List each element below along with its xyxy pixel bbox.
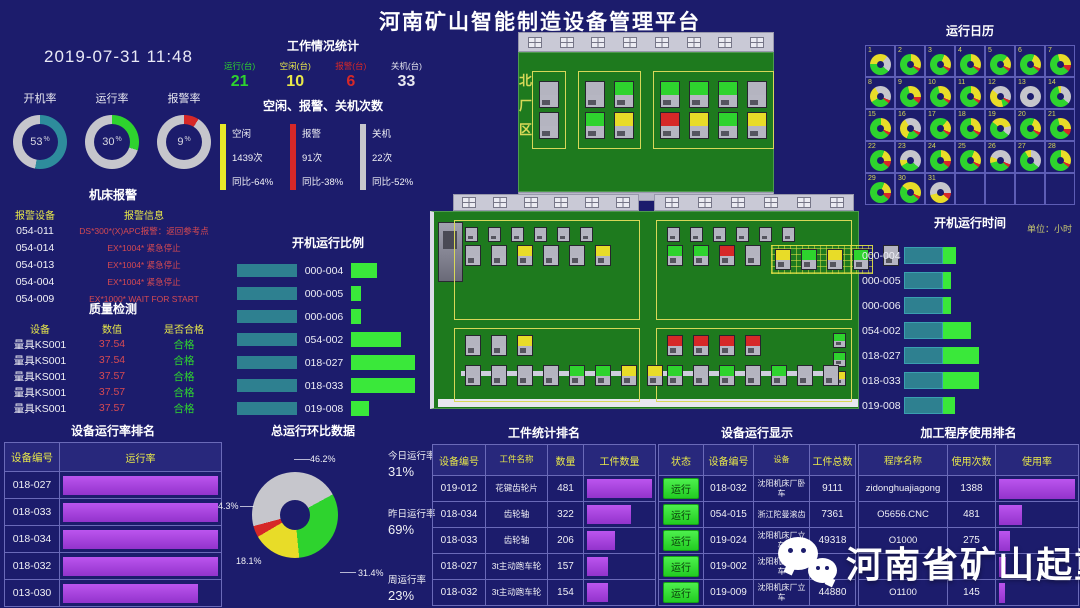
run-bar — [351, 263, 377, 278]
runrate-bar-cell — [59, 499, 221, 525]
column-header: 程序名称 — [859, 445, 947, 475]
machine-icon — [511, 227, 524, 242]
status-cell: 运行 — [659, 554, 703, 579]
run-bar — [943, 347, 979, 364]
machine-icon — [759, 227, 772, 242]
workpiece-qty: 154 — [547, 580, 583, 605]
window-icon — [623, 37, 637, 48]
table-row: 018-032 — [5, 552, 221, 579]
machine-icon — [747, 81, 767, 108]
work-stat-label: 报警(台) — [335, 60, 366, 72]
column-header: 设备 — [753, 445, 809, 475]
north-factory-floor: 北厂区 — [518, 52, 774, 192]
run-bar — [943, 247, 956, 264]
quality-device: 量具KS001 — [4, 385, 76, 400]
boot-time-panel: 开机运行时间 单位：小时 000-004000-005000-006054-00… — [862, 214, 1078, 418]
machine-row — [539, 112, 559, 139]
quality-check-panel: 质量检测 设备 数值 是否合格 量具KS00137.54合格量具KS00137.… — [4, 300, 222, 416]
work-stat: 关机(台)33 — [391, 60, 422, 91]
factory-zone — [656, 328, 852, 402]
column-header: 设备编号 — [433, 445, 485, 475]
table-row: 013-030 — [5, 579, 221, 606]
table-row: 054-011DS*300*(X)APC报警：返回参考点 — [4, 222, 222, 239]
qty-bar-cell — [583, 528, 655, 553]
qty-bar-cell — [583, 476, 655, 501]
machine-icon — [557, 227, 570, 242]
table-row: 量具KS00137.57合格 — [4, 400, 222, 416]
runrate-rank-title: 设备运行率排名 — [4, 422, 222, 439]
work-stat: 运行(台)21 — [224, 60, 255, 91]
boot-run-ratio-title: 开机运行比例 — [228, 234, 428, 251]
calendar-day-number: 13 — [1018, 79, 1026, 86]
machine-icon — [465, 245, 481, 266]
calendar-day-cell: 21 — [1045, 109, 1075, 141]
machine-icon — [595, 245, 611, 266]
table-header-row: 设备编号 工件名称 数量 工件数量 — [433, 445, 655, 475]
gauge-donut: 53% — [13, 115, 67, 169]
qty-bar — [587, 583, 608, 602]
slice-label: 46.2% — [310, 454, 336, 464]
calendar-day-number: 14 — [1048, 79, 1056, 86]
boot-time-row: 018-027 — [862, 343, 1078, 368]
factory-zone — [653, 71, 774, 149]
slice-label: 4.3% — [218, 501, 239, 511]
window-icon — [528, 37, 542, 48]
machine-group — [465, 245, 611, 266]
count-stat-bar — [290, 124, 296, 190]
calendar-day-number: 30 — [898, 175, 906, 182]
count-stat-group: 关机22次同比-52% — [360, 124, 426, 190]
watermark: 河南省矿山起重机 — [778, 534, 1080, 590]
table-row: 量具KS00137.54合格 — [4, 352, 222, 368]
machine-icon — [465, 227, 478, 242]
calendar-day-cell: 31 — [925, 173, 955, 205]
count-stat-label: 空闲 — [232, 126, 273, 140]
device-id: 018-033 — [297, 380, 351, 392]
machine-group — [465, 227, 593, 242]
work-stat-label: 关机(台) — [391, 60, 422, 72]
calendar-day-cell: 1 — [865, 45, 895, 77]
quality-device: 量具KS001 — [4, 401, 76, 416]
alarm-message: DS*300*(X)APC报警：返回参考点 — [66, 225, 222, 237]
machine-icon — [488, 227, 501, 242]
gauge-unit: % — [116, 136, 122, 143]
runrate-rank-panel: 设备运行率排名 设备编号 运行率 018-027018-033018-03401… — [4, 422, 222, 607]
machine-icon — [775, 249, 791, 270]
gauge-label: 报警率 — [150, 90, 218, 106]
calendar-mini-donut — [960, 54, 981, 75]
total-run-donut-chart — [252, 472, 338, 558]
calendar-day-cell — [985, 173, 1015, 205]
run-bar — [943, 397, 955, 414]
window-icon — [524, 197, 538, 208]
machine-alarm-rows: 054-011DS*300*(X)APC报警：返回参考点054-014EX*10… — [4, 222, 222, 307]
calendar-day-cell: 8 — [865, 77, 895, 109]
alarm-device: 054-011 — [4, 225, 66, 237]
column-header: 工件数量 — [583, 445, 655, 475]
device-id: 000-004 — [297, 265, 351, 277]
machine-icon — [614, 81, 634, 108]
ratio-row: 000-006 — [228, 305, 428, 328]
column-header: 是否合格 — [148, 321, 220, 336]
count-stat-group: 空闲1439次同比-64% — [220, 124, 286, 190]
north-factory-map: 北厂区 — [518, 32, 774, 202]
calendar-day-cell — [1015, 173, 1045, 205]
boot-time-row: 019-008 — [862, 393, 1078, 418]
calendar-day-number: 8 — [868, 79, 872, 86]
device-id: 000-004 — [862, 250, 904, 262]
calendar-day-number: 11 — [958, 79, 965, 86]
boot-bar — [237, 310, 297, 323]
device-id: 019-008 — [862, 400, 904, 412]
calendar-day-cell: 9 — [895, 77, 925, 109]
quality-check-title: 质量检测 — [4, 300, 222, 317]
workpiece-name: 齿轮轴 — [485, 502, 547, 527]
workpiece-qty: 481 — [547, 476, 583, 501]
run-bar — [943, 372, 979, 389]
factory-windows — [518, 32, 774, 52]
run-status-button[interactable]: 运行 — [663, 582, 699, 603]
machine-icon — [771, 365, 787, 386]
unit-label: 单位：小时 — [1027, 222, 1072, 235]
alarm-device: 054-014 — [4, 242, 66, 254]
machine-group — [667, 365, 839, 386]
runrate-bar-cell — [59, 472, 221, 498]
gauge-value: 9% — [157, 115, 211, 169]
window-icon — [698, 197, 712, 208]
boot-bar — [237, 402, 297, 415]
boot-bar — [904, 397, 943, 414]
device-name: 浙江陀曼滚齿 — [753, 502, 809, 527]
run-calendar-title: 运行日历 — [862, 22, 1078, 39]
column-header: 设备 — [4, 321, 76, 336]
ratio-row: 054-002 — [228, 328, 428, 351]
table-row: 018-034齿轮轴322 — [433, 501, 655, 527]
calendar-mini-donut — [870, 86, 891, 107]
leader-line — [294, 459, 310, 460]
status-cell: 运行 — [659, 502, 703, 527]
machine-icon — [569, 245, 585, 266]
work-stat: 空闲(台)10 — [280, 60, 311, 91]
machine-row — [660, 81, 767, 108]
gauge-label: 开机率 — [6, 90, 74, 106]
machine-icon — [667, 365, 683, 386]
usage-count: 1388 — [947, 476, 995, 501]
factory-zone — [454, 328, 640, 402]
usage-bar-cell — [995, 502, 1078, 527]
usage-bar-cell — [995, 476, 1078, 501]
table-row: 运行054-015浙江陀曼滚齿7361 — [659, 501, 855, 527]
device-id: 054-002 — [862, 325, 904, 337]
calendar-day-number: 5 — [988, 47, 992, 54]
calendar-day-cell: 22 — [865, 141, 895, 173]
calendar-day-cell: 6 — [1015, 45, 1045, 77]
device-id: 000-006 — [297, 311, 351, 323]
calendar-mini-donut — [990, 150, 1011, 171]
device-id: 018-027 — [297, 357, 351, 369]
calendar-mini-donut — [960, 118, 981, 139]
column-header: 工件名称 — [485, 445, 547, 475]
machine-icon — [647, 365, 663, 386]
calendar-mini-donut — [900, 86, 921, 107]
machine-icon — [689, 81, 709, 108]
table-row: O5656.CNC481 — [859, 501, 1078, 527]
south-factory-map — [430, 194, 859, 418]
calendar-mini-donut — [900, 182, 921, 203]
column-header: 报警设备 — [4, 207, 66, 222]
calendar-day-cell: 5 — [985, 45, 1015, 77]
device-id: 018-032 — [433, 580, 485, 605]
boot-time-row: 000-005 — [862, 268, 1078, 293]
column-header: 状态 — [659, 445, 703, 475]
machine-alarm-title: 机床报警 — [4, 186, 222, 203]
calendar-mini-donut — [1050, 86, 1071, 107]
calendar-mini-donut — [930, 118, 951, 139]
table-row: 量具KS00137.54合格 — [4, 336, 222, 352]
gauge-donut: 9% — [157, 115, 211, 169]
window-icon — [731, 197, 745, 208]
count-stat-count: 91次 — [302, 150, 343, 164]
table-row: 量具KS00137.57合格 — [4, 368, 222, 384]
table-row: 054-004EX*1004* 紧急停止 — [4, 273, 222, 290]
table-row: 018-034 — [5, 525, 221, 552]
qty-bar-cell — [583, 554, 655, 579]
machine-icon — [782, 227, 795, 242]
machine-icon — [491, 335, 507, 356]
machine-icon — [718, 81, 738, 108]
calendar-day-number: 29 — [868, 175, 876, 182]
machine-icon — [797, 365, 813, 386]
factory-windows — [453, 194, 639, 211]
machine-icon — [827, 249, 843, 270]
calendar-day-number: 26 — [988, 143, 996, 150]
window-icon — [554, 197, 568, 208]
quality-device: 量具KS001 — [4, 337, 76, 352]
workpiece-name: 3t主动跑车轮 — [485, 580, 547, 605]
run-bar — [351, 355, 415, 370]
quality-rows: 量具KS00137.54合格量具KS00137.54合格量具KS00137.57… — [4, 336, 222, 416]
device-id: 019-009 — [703, 580, 753, 605]
workpiece-rank-title: 工件统计排名 — [432, 424, 656, 441]
quality-value: 37.57 — [76, 370, 148, 382]
work-stats-title: 工作情况统计 — [220, 37, 426, 54]
window-icon — [687, 37, 701, 48]
machine-icon — [543, 245, 559, 266]
machine-icon — [621, 365, 637, 386]
run-status-button[interactable]: 运行 — [663, 556, 699, 577]
table-row: 018-0323t主动跑车轮154 — [433, 579, 655, 605]
total-run-ring-title: 总运行环比数据 — [228, 422, 398, 439]
run-status-button[interactable]: 运行 — [663, 530, 699, 551]
calendar-day-number: 7 — [1048, 47, 1052, 54]
window-icon — [493, 197, 507, 208]
alarm-message: EX*1004* 紧急停止 — [66, 276, 222, 288]
quality-result: 合格 — [148, 353, 220, 368]
run-status-button[interactable]: 运行 — [663, 504, 699, 525]
device-id: 054-002 — [297, 334, 351, 346]
work-stat-value: 33 — [391, 73, 422, 91]
calendar-day-cell: 26 — [985, 141, 1015, 173]
boot-bar — [904, 322, 943, 339]
quality-headers: 设备 数值 是否合格 — [4, 321, 222, 336]
column-header: 使用次数 — [947, 445, 995, 475]
table-header-row: 状态 设备编号 设备 工件总数 — [659, 445, 855, 475]
workpiece-qty: 322 — [547, 502, 583, 527]
count-stat-yoy: 同比-52% — [372, 174, 413, 188]
calendar-day-number: 31 — [928, 175, 936, 182]
device-run-title: 设备运行显示 — [658, 424, 856, 441]
ratio-row: 018-027 — [228, 351, 428, 374]
calendar-day-number: 25 — [958, 143, 966, 150]
qty-bar — [587, 505, 631, 524]
status-cell: 运行 — [659, 580, 703, 605]
rate-gauge: 运行率30% — [78, 90, 146, 169]
machine-icon — [667, 335, 683, 356]
runrate-bar — [63, 557, 218, 576]
table-row: 019-012花键齿轮片481 — [433, 475, 655, 501]
dashboard: 河南矿山智能制造设备管理平台 2019-07-31 11:48 开机率53%运行… — [0, 0, 1080, 608]
machine-icon — [693, 245, 709, 266]
calendar-day-number: 22 — [868, 143, 876, 150]
runrate-bar — [63, 584, 198, 603]
calendar-day-cell: 28 — [1045, 141, 1075, 173]
machine-icon — [823, 365, 839, 386]
column-header: 数量 — [547, 445, 583, 475]
machine-row — [539, 81, 559, 108]
machine-icon — [517, 245, 533, 266]
machine-group — [667, 335, 761, 356]
calendar-mini-donut — [1020, 54, 1041, 75]
machine-icon — [465, 335, 481, 356]
table-row: 018-0273t主动跑车轮157 — [433, 553, 655, 579]
machine-icon — [539, 81, 559, 108]
window-icon — [665, 197, 679, 208]
run-calendar-panel: 运行日历 12345678910111213141516171819202122… — [862, 22, 1078, 205]
device-id: 018-033 — [5, 499, 59, 525]
qty-bar-cell — [583, 580, 655, 605]
workpiece-total: 7361 — [809, 502, 855, 527]
calendar-mini-donut — [960, 86, 981, 107]
calendar-day-cell: 29 — [865, 173, 895, 205]
count-stat-group: 报警91次同比-38% — [290, 124, 356, 190]
window-icon — [750, 37, 764, 48]
workpiece-name: 齿轮轴 — [485, 528, 547, 553]
window-icon — [655, 37, 669, 48]
calendar-mini-donut — [990, 54, 1011, 75]
window-icon — [560, 37, 574, 48]
datetime: 2019-07-31 11:48 — [44, 47, 193, 67]
column-header: 使用率 — [995, 445, 1078, 475]
workpiece-name: 花键齿轮片 — [485, 476, 547, 501]
column-header: 设备编号 — [703, 445, 753, 475]
machine-icon — [517, 335, 533, 356]
run-calendar-grid: 1234567891011121314151617181920212223242… — [865, 45, 1075, 205]
count-stat-count: 1439次 — [232, 150, 273, 164]
calendar-day-cell: 16 — [895, 109, 925, 141]
boot-time-row: 000-006 — [862, 293, 1078, 318]
calendar-mini-donut — [990, 118, 1011, 139]
calendar-day-number: 9 — [898, 79, 902, 86]
leader-line — [340, 572, 356, 573]
calendar-day-number: 3 — [928, 47, 932, 54]
boot-time-row: 018-033 — [862, 368, 1078, 393]
calendar-mini-donut — [960, 150, 981, 171]
runrate-bar — [63, 503, 218, 522]
window-icon — [718, 37, 732, 48]
factory-zone — [532, 71, 566, 149]
table-row: 运行018-032沈阳机床厂卧车9111 — [659, 475, 855, 501]
work-stats-panel: 工作情况统计 运行(台)21空闲(台)10报警(台)6关机(台)33 — [220, 37, 426, 91]
calendar-day-number: 28 — [1048, 143, 1056, 150]
calendar-day-number: 18 — [958, 111, 966, 118]
calendar-day-number: 23 — [898, 143, 906, 150]
calendar-day-number: 24 — [928, 143, 936, 150]
calendar-day-number: 2 — [898, 47, 902, 54]
device-id: 019-008 — [297, 403, 351, 415]
calendar-day-cell — [1045, 173, 1075, 205]
calendar-mini-donut — [900, 118, 921, 139]
ratio-row: 018-033 — [228, 374, 428, 397]
quality-value: 37.54 — [76, 354, 148, 366]
quality-result: 合格 — [148, 369, 220, 384]
leader-line — [240, 506, 254, 507]
table-row: 量具KS00137.57合格 — [4, 384, 222, 400]
machine-row — [660, 112, 767, 139]
machine-icon — [569, 365, 585, 386]
run-bar — [351, 286, 361, 301]
rate-gauge: 报警率9% — [150, 90, 218, 169]
run-bar — [351, 332, 401, 347]
workpiece-total: 9111 — [809, 476, 855, 501]
boot-bar — [237, 333, 297, 346]
device-id: 019-024 — [703, 528, 753, 553]
machine-icon — [534, 227, 547, 242]
north-area-label: 北厂区 — [519, 53, 532, 191]
calendar-day-cell: 12 — [985, 77, 1015, 109]
calendar-day-cell: 2 — [895, 45, 925, 77]
table-row: zidonghuajiagong1388 — [859, 475, 1078, 501]
calendar-day-cell — [955, 173, 985, 205]
boot-bar — [904, 247, 943, 264]
gauge-value: 30% — [85, 115, 139, 169]
machine-alarm-headers: 报警设备 报警信息 — [4, 207, 222, 222]
device-id: 019-012 — [433, 476, 485, 501]
gauge-donut: 30% — [85, 115, 139, 169]
runrate-bar — [63, 476, 218, 495]
calendar-day-number: 1 — [868, 47, 872, 54]
program-usage-title: 加工程序使用排名 — [858, 424, 1079, 441]
calendar-day-number: 16 — [898, 111, 906, 118]
column-header: 设备编号 — [5, 443, 59, 471]
idle-alarm-off-title: 空闲、报警、关机次数 — [220, 97, 426, 114]
boot-time-row: 054-002 — [862, 318, 1078, 343]
calendar-day-cell: 7 — [1045, 45, 1075, 77]
rate-gauges: 开机率53%运行率30%报警率9% — [6, 90, 218, 169]
calendar-day-number: 15 — [868, 111, 876, 118]
device-id: 018-034 — [433, 502, 485, 527]
factory-zone — [656, 220, 852, 320]
workpiece-qty: 157 — [547, 554, 583, 579]
table-header-row: 设备编号 运行率 — [5, 443, 221, 471]
status-cell: 运行 — [659, 528, 703, 553]
calendar-day-number: 17 — [928, 111, 936, 118]
calendar-mini-donut — [1050, 150, 1071, 171]
device-id: 000-005 — [297, 288, 351, 300]
run-status-button[interactable]: 运行 — [663, 478, 699, 499]
machine-icon — [660, 81, 680, 108]
calendar-day-cell: 18 — [955, 109, 985, 141]
window-icon — [764, 197, 778, 208]
